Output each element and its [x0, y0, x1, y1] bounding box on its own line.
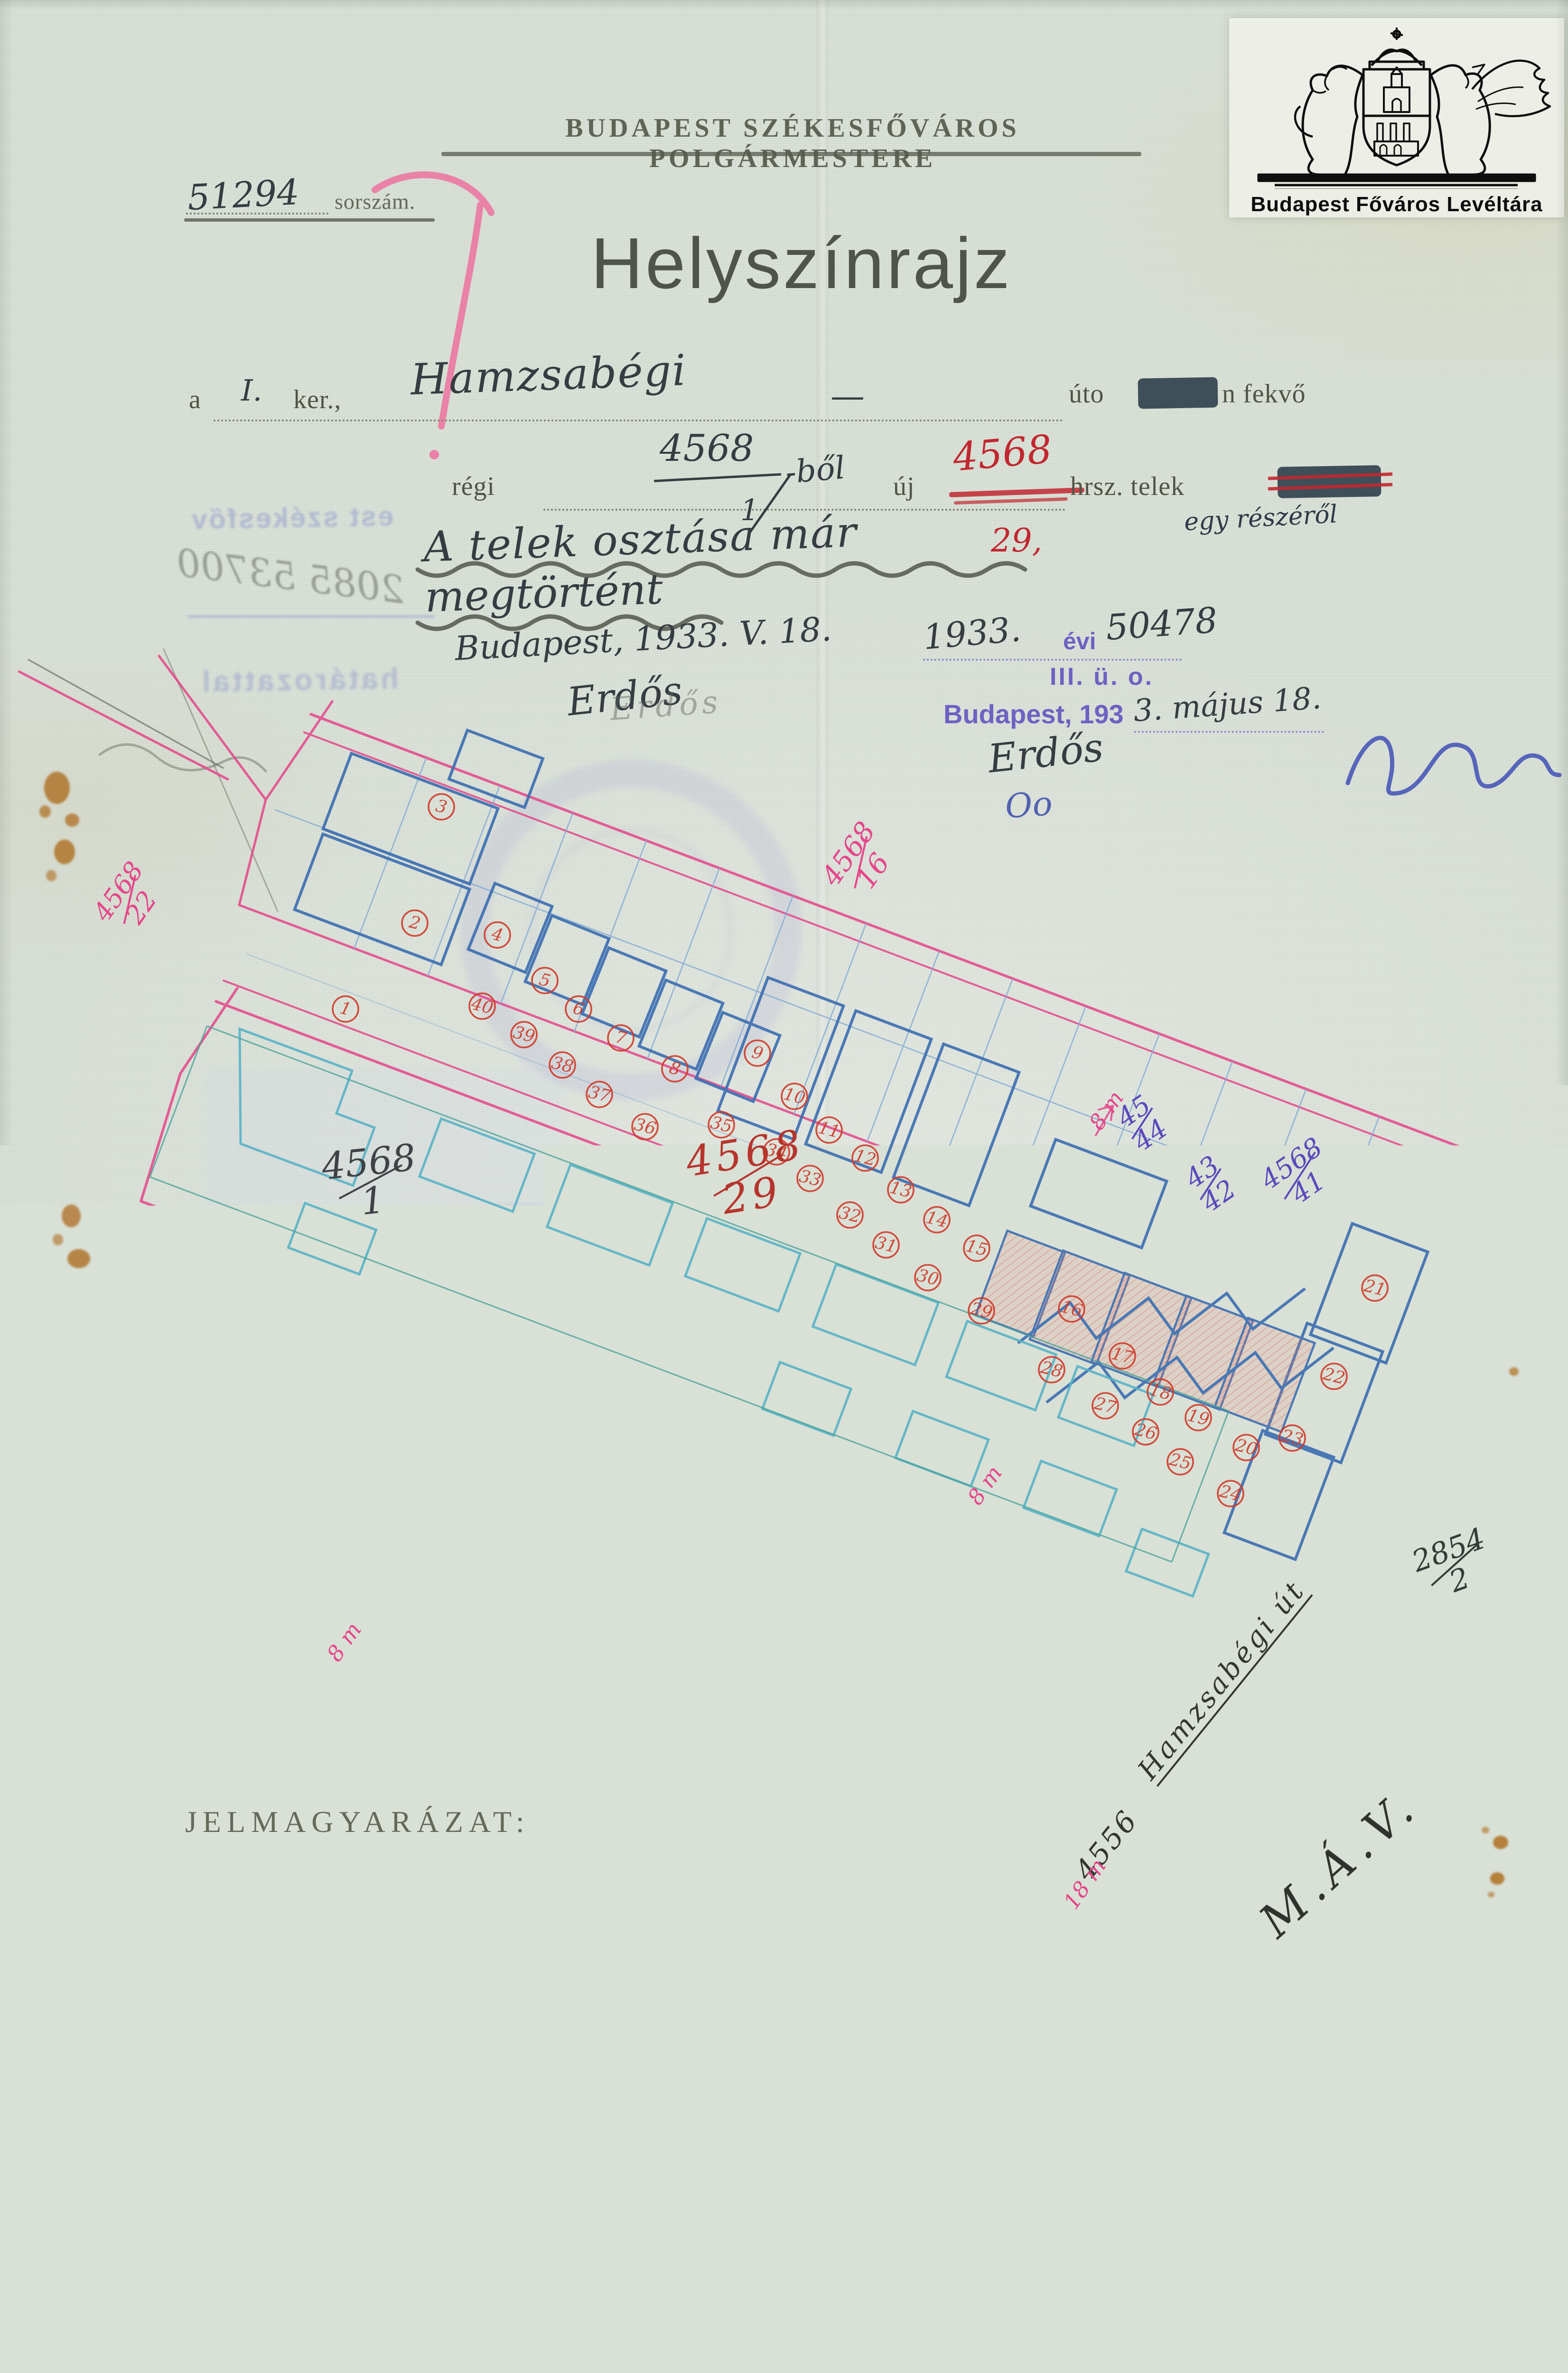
- file-year: 1933.: [922, 609, 1023, 657]
- map-pencil-signature: Erdős: [609, 683, 723, 728]
- north-arrow-head: [1359, 1634, 1378, 1661]
- dateline-dots: [567, 2235, 1236, 2237]
- szelveny-old-dots: [185, 2366, 268, 2368]
- pink-grade-dot: [429, 450, 439, 459]
- form-new-sub: 29,: [991, 522, 1042, 560]
- blue-signature: [1348, 738, 1559, 794]
- dateline-n: n.: [1203, 2206, 1221, 2232]
- paragraph-4b: megváltoztatására.: [190, 2100, 362, 2125]
- legend-regulation-sample: [589, 1882, 661, 1887]
- form-street-name: Hamzsabégi: [410, 346, 687, 405]
- railway-symbol-curl: [1494, 1776, 1525, 1810]
- dateline-year-digit: 3: [546, 2198, 564, 2233]
- form-new-hrsz: 4568: [951, 427, 1054, 480]
- legend-item-szabalyozasi: szabályozási vonal.: [680, 1871, 888, 1900]
- zone-dotted: [375, 1991, 508, 1993]
- form-old-hrsz: 4568: [660, 427, 754, 470]
- vacsay-signature: [1129, 2345, 1383, 2373]
- page-title: Helyszínrajz: [591, 222, 1012, 305]
- serial-rule: [184, 218, 435, 222]
- plot-number-2: 2: [407, 912, 422, 934]
- dateline-budapest: Budapest, 193: [327, 2206, 464, 2232]
- archive-logo: Budapest Főváros Levéltára: [1229, 18, 1564, 217]
- szelveny-brace: }: [377, 2310, 431, 2373]
- form-ker: ker.,: [293, 384, 341, 415]
- legend-item-telekhatar: telekhatár.: [352, 1871, 465, 1900]
- serial-number-label: sorszám.: [335, 189, 415, 214]
- parcel-label-4568-1: 45681: [320, 1140, 421, 1224]
- szelveny-old-value: 179: [189, 2326, 247, 2361]
- scale-label: Lépték :: [542, 1921, 635, 1953]
- stamp-dots2: [1134, 731, 1324, 733]
- legend-boundary-sample: [194, 1883, 334, 1887]
- form-uto-prefix: úto: [1069, 379, 1104, 409]
- stamp-budapest: Budapest, 193: [943, 699, 1124, 729]
- scale-value: 1:1440: [662, 1917, 765, 1952]
- serial-dotted-line: [186, 213, 328, 215]
- paragraph-3: A helyszínrajz a kelet idején való állap…: [259, 2033, 1175, 2058]
- form-prefix-a: a: [189, 384, 201, 415]
- scale-flourish: [478, 1946, 540, 1952]
- blue-monogram: Oo: [1004, 784, 1054, 826]
- paragraph-4a: A helyszínrajz kiadása nem szünteti meg …: [259, 2066, 1294, 2092]
- dateline-ho: hó: [1081, 2206, 1105, 2232]
- form-district: I.: [241, 373, 262, 408]
- stamp-dots1: [923, 659, 1182, 661]
- form-telek-ink-blot: [1277, 465, 1381, 498]
- office-header: BUDAPEST SZÉKESFŐVÁROS POLGÁRMESTERE: [441, 113, 1144, 174]
- serial-number-value: 51294: [187, 172, 300, 218]
- scanned-document-page: 1234567891011121314151617181920212223242…: [0, 0, 1568, 2373]
- stamp-evi: évi: [1063, 627, 1096, 655]
- zone-sentence-prefix: A telek a: [259, 1964, 341, 1989]
- office-header-rule: [441, 152, 1141, 156]
- form-line1-dots: [214, 420, 1063, 421]
- zone-sentence-suffix: övezetben fekszik.: [515, 1964, 686, 1989]
- dateline-evi: évi: [615, 2206, 644, 2232]
- stamp-department: III. ü. o.: [1050, 663, 1154, 691]
- ghost-stamp-text2: határozattal: [199, 662, 399, 699]
- coat-of-arms: [1229, 18, 1564, 189]
- plot-number-4: 4: [489, 924, 505, 946]
- form-uj: új: [893, 471, 915, 502]
- ghost-stamp-text1: est székesfőv: [189, 500, 393, 535]
- form-street-dash: —: [831, 376, 865, 416]
- plot-number-1: 1: [338, 998, 353, 1019]
- plot-number-3: 3: [434, 796, 449, 817]
- dateline-day: 18.: [1138, 2187, 1185, 2222]
- zone-value: VI.: [417, 1950, 457, 1983]
- form-hrsz-telek: hrsz. telek: [1070, 471, 1185, 502]
- note-line2: megtörtént: [424, 564, 663, 621]
- dateline-month: márc.: [743, 2187, 833, 2224]
- form-uto-ink-blot: [1138, 377, 1218, 409]
- paragraph-5b: lete céljára adtuk ki.: [190, 2167, 377, 2192]
- archive-logo-caption: Budapest Főváros Levéltára: [1229, 193, 1564, 216]
- form-regi: régi: [452, 471, 495, 502]
- form-bol: -ből: [784, 449, 847, 491]
- szelveny-old-label: sz. régi: [276, 2339, 346, 2365]
- ghost-underline: [187, 615, 434, 618]
- form-uto-suffix: n fekvő: [1222, 379, 1306, 409]
- paragraph-5a: A helyszínrajzot a telekhatárok és a sza…: [259, 2135, 1294, 2160]
- file-number: 50478: [1104, 600, 1219, 648]
- issuer-line2: III. ügyosztálya:: [1076, 2282, 1285, 2314]
- paragraph-2: A telek szabályozási szempontból nincs r…: [259, 1999, 751, 2024]
- issuer-line1: A székesfőváros polgármesteri: [944, 2244, 1343, 2276]
- legend-title: JELMAGYARÁZAT:: [185, 1804, 530, 1840]
- szelveny-label: szelvény.: [429, 2367, 514, 2373]
